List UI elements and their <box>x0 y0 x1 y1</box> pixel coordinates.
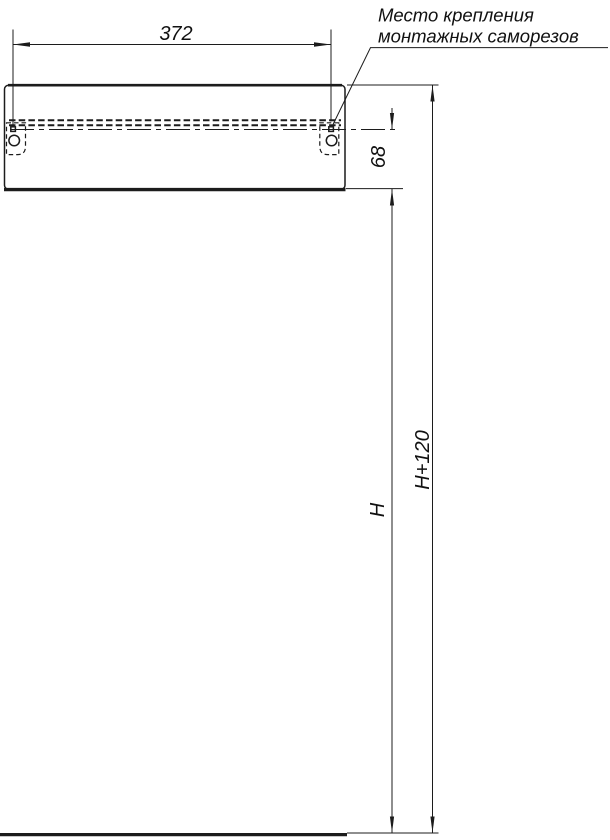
dim-H-arrow-top <box>390 189 394 206</box>
technical-drawing-page: 372 Место крепления монтажных саморезов … <box>0 0 610 840</box>
right-bracket-hole <box>326 135 337 146</box>
dimension-372: 372 <box>13 23 331 126</box>
dim-68-arrow-top <box>390 113 394 130</box>
dimension-H: H <box>367 189 394 833</box>
callout-mounting-screws: Место крепления монтажных саморезов <box>333 5 608 125</box>
dimension-68: 68 <box>346 108 403 189</box>
floor-line <box>0 833 439 835</box>
dim-Hplus-label: H+120 <box>412 430 434 490</box>
dim-372-arrow-left <box>13 42 30 46</box>
dim-H-arrow-bottom <box>390 817 394 834</box>
dim-H-label: H <box>367 502 389 517</box>
cabinet-mounting-diagram: 372 Место крепления монтажных саморезов … <box>0 0 610 840</box>
dim-68-label: 68 <box>368 146 390 168</box>
callout-text-line1: Место крепления <box>378 5 534 26</box>
mounting-rail-hidden-lines <box>9 120 341 125</box>
dim-372-arrow-right <box>314 42 331 46</box>
dim-Hplus-arrow-bottom <box>430 817 434 834</box>
right-bracket <box>320 123 339 155</box>
dim-372-label: 372 <box>159 23 192 45</box>
dim-Hplus-arrow-top <box>430 85 434 102</box>
callout-leader-line <box>333 48 608 125</box>
cabinet-body <box>4 85 346 189</box>
cabinet-outline <box>5 85 346 189</box>
left-bracket <box>7 123 26 155</box>
left-bracket-hole <box>9 135 20 146</box>
callout-text-line2: монтажных саморезов <box>378 26 579 47</box>
